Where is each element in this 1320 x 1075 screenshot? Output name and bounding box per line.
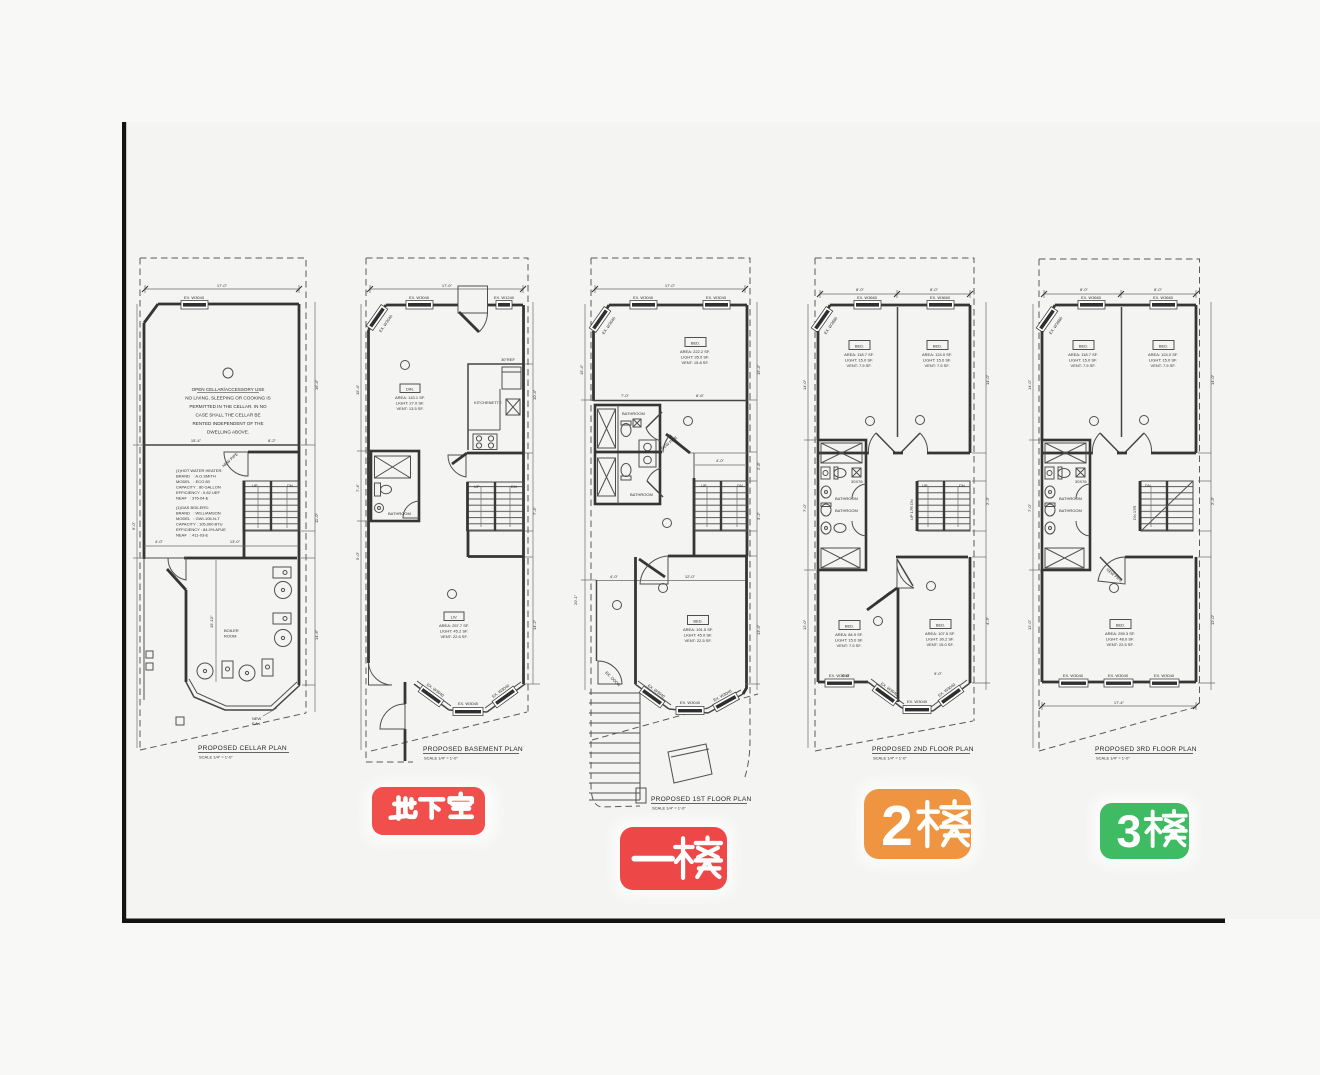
svg-text:CASE SHALL THE CELLAR BE: CASE SHALL THE CELLAR BE [195,413,260,418]
svg-text:2'-8": 2'-8" [756,461,761,470]
svg-text:AREA: 124.0 SF.: AREA: 124.0 SF. [1148,352,1178,357]
svg-text:CAPACITY : 80 GALLON: CAPACITY : 80 GALLON [176,485,221,490]
svg-text:BATHROOM: BATHROOM [835,508,858,513]
svg-text:LIGHT: 27.0 SF.: LIGHT: 27.0 SF. [396,401,424,406]
svg-text:BATHROOM: BATHROOM [622,411,645,416]
svg-text:PROPOSED CELLAR PLAN: PROPOSED CELLAR PLAN [198,745,287,752]
svg-text:EX. W3660: EX. W3660 [1153,295,1174,300]
svg-text:VENT: 7.5 SF.: VENT: 7.5 SF. [925,363,950,368]
svg-text:EX. W3040: EX. W3040 [184,295,205,300]
svg-text:VENT: 22.6 SF.: VENT: 22.6 SF. [440,634,467,639]
svg-text:8'-0": 8'-0" [1154,287,1163,292]
svg-text:AREA: 107.5 SF.: AREA: 107.5 SF. [925,631,955,636]
svg-text:PROPOSED 2ND FLOOR PLAN: PROPOSED 2ND FLOOR PLAN [872,746,974,753]
svg-text:DN: DN [1145,483,1151,488]
svg-text:14'-0": 14'-0" [802,379,807,390]
svg-text:EX. W3040: EX. W3040 [633,295,654,300]
svg-text:BED.: BED. [1079,344,1088,349]
svg-text:AREA: 84.9 SF.: AREA: 84.9 SF. [835,632,863,637]
svg-text:SCALE 1/4" = 1'-0": SCALE 1/4" = 1'-0" [873,756,907,761]
svg-text:7'-0": 7'-0" [802,503,807,512]
svg-text:17'-0": 17'-0" [217,283,228,288]
svg-text:BED.: BED. [936,623,945,628]
svg-text:RENTED INDEPENDENT OF THE: RENTED INDEPENDENT OF THE [192,421,263,426]
svg-text:NEA# : 376-04-E: NEA# : 376-04-E [176,496,209,501]
svg-text:VENT: 7.5 SF.: VENT: 7.5 SF. [1151,363,1176,368]
svg-text:AREA: 259.3 SF.: AREA: 259.3 SF. [1105,631,1135,636]
svg-text:NO LIVING, SLEEPING OR COOKING: NO LIVING, SLEEPING OR COOKING IS [185,396,271,401]
svg-text:DN: DN [287,483,293,488]
svg-text:EX. W3040: EX. W3040 [907,699,928,704]
svg-text:14'-0": 14'-0" [1210,374,1215,385]
svg-text:EX. W3040: EX. W3040 [1108,673,1129,678]
svg-text:14'-6": 14'-6" [314,629,319,640]
svg-text:30X76: 30X76 [851,479,863,484]
svg-text:LIGHT: 45.2 SF.: LIGHT: 45.2 SF. [440,629,468,634]
svg-text:15'-4": 15'-4" [756,364,761,375]
svg-text:ROOM: ROOM [224,634,236,639]
svg-text:EFFICIENCY : 84.0% AFUE: EFFICIENCY : 84.0% AFUE [176,527,226,532]
svg-text:LIGHT: 15.0 SF.: LIGHT: 15.0 SF. [923,358,951,363]
svg-text:7'-4": 7'-4" [355,483,360,492]
svg-text:LIV.: LIV. [451,615,458,620]
svg-text:EX. W3660: EX. W3660 [857,295,878,300]
svg-text:13'-4": 13'-4" [756,624,761,635]
svg-text:4'-0": 4'-0" [155,539,164,544]
svg-text:BED.: BED. [693,619,702,624]
svg-text:VENT: 15.0 SF.: VENT: 15.0 SF. [926,642,953,647]
svg-text:UP: UP [474,484,480,489]
svg-text:30"REF: 30"REF [501,357,515,362]
svg-text:3'-2": 3'-2" [756,511,761,520]
svg-text:DN: DN [737,483,743,488]
svg-text:13'-0": 13'-0" [230,539,241,544]
svg-text:DN: DN [511,484,517,489]
svg-text:3: 3 [1116,806,1141,857]
svg-text:AREA: 124.0 SF.: AREA: 124.0 SF. [922,352,952,357]
svg-text:PROPOSED 1ST FLOOR PLAN: PROPOSED 1ST FLOOR PLAN [651,796,752,803]
svg-text:9'-0": 9'-0" [934,671,943,676]
svg-text:12'-0": 12'-0" [1210,614,1215,625]
svg-text:4'-0": 4'-0" [716,458,725,463]
svg-text:BATHROOM: BATHROOM [388,511,411,516]
svg-text:UP: UP [701,483,707,488]
svg-text:LIGHT: 48.0 SF.: LIGHT: 48.0 SF. [1106,637,1134,642]
svg-text:BED.: BED. [1116,623,1125,628]
svg-text:VENT: 22.5 SF.: VENT: 22.5 SF. [684,638,711,643]
svg-text:6'-0": 6'-0" [131,521,136,530]
svg-text:2'-3": 2'-3" [1210,496,1215,505]
svg-text:OPEN CELLAR/ACCESSORY USE: OPEN CELLAR/ACCESSORY USE [192,387,265,392]
svg-text:BED.: BED. [855,344,864,349]
svg-text:EFFICIENCY : 0.82 UEF: EFFICIENCY : 0.82 UEF [176,490,220,495]
svg-text:EX. W3040: EX. W3040 [1154,673,1175,678]
svg-text:DN 17R: DN 17R [1132,506,1137,520]
svg-text:15'-4": 15'-4" [579,364,584,375]
svg-text:VENT: 7.5 SF.: VENT: 7.5 SF. [837,643,862,648]
svg-text:2: 2 [881,794,913,858]
svg-text:BATHROOM: BATHROOM [1059,496,1082,501]
svg-text:30X76: 30X76 [1075,479,1087,484]
svg-text:(1)GAS BOILERS:: (1)GAS BOILERS: [176,505,209,510]
svg-text:UP 17R DN: UP 17R DN [909,499,914,520]
svg-text:BOILER: BOILER [224,628,239,633]
svg-text:EX. W3040: EX. W3040 [1063,673,1084,678]
svg-text:VENT: 7.5 SF.: VENT: 7.5 SF. [1071,363,1096,368]
svg-text:4'-0": 4'-0" [610,574,619,579]
svg-text:EX. W3040: EX. W3040 [409,295,430,300]
svg-text:12'-0": 12'-0" [1027,619,1032,630]
svg-text:MODEL : ECO 80: MODEL : ECO 80 [176,479,211,484]
svg-text:LIGHT: 15.0 SF.: LIGHT: 15.0 SF. [845,358,873,363]
svg-text:BATHROOM: BATHROOM [835,496,858,501]
svg-text:EX. W3040: EX. W3040 [458,701,479,706]
svg-text:LIGHT: 15.0 SF.: LIGHT: 15.0 SF. [1149,358,1177,363]
svg-text:PROPOSED 3RD FLOOR PLAN: PROPOSED 3RD FLOOR PLAN [1095,746,1197,753]
svg-text:4'-3": 4'-3" [985,616,990,625]
svg-text:SCALE 1/4" = 1'-0": SCALE 1/4" = 1'-0" [1096,756,1130,761]
svg-text:F.A.I.: F.A.I. [252,721,261,726]
svg-text:EX. W3040: EX. W3040 [829,673,850,678]
svg-text:2'-3": 2'-3" [985,496,990,505]
svg-text:17'-4": 17'-4" [1114,700,1125,705]
svg-text:LIGHT: 35.0 SF.: LIGHT: 35.0 SF. [681,355,709,360]
svg-text:BED.: BED. [1159,344,1168,349]
svg-text:DWELLING ABOVE.: DWELLING ABOVE. [207,430,249,435]
svg-text:17'-0": 17'-0" [442,283,453,288]
svg-text:BED.: BED. [691,341,700,346]
svg-text:12'-0": 12'-0" [802,619,807,630]
svg-text:EX. W3660: EX. W3660 [930,295,951,300]
svg-text:8'-0": 8'-0" [930,287,939,292]
svg-text:BATHROOM: BATHROOM [1059,508,1082,513]
svg-text:VENT: 15.8 SF.: VENT: 15.8 SF. [681,360,708,365]
svg-text:SCALE 1/4" = 1'-0": SCALE 1/4" = 1'-0" [652,806,686,811]
svg-text:PERMITTED IN THE CELLAR. IN NO: PERMITTED IN THE CELLAR. IN NO [189,404,267,409]
svg-text:BATHROOM: BATHROOM [630,492,653,497]
svg-text:15'-4": 15'-4" [355,384,360,395]
svg-text:8'-0": 8'-0" [1080,287,1089,292]
svg-text:VENT: 7.5 SF.: VENT: 7.5 SF. [847,363,872,368]
svg-text:LIGHT: 30.2 SF.: LIGHT: 30.2 SF. [926,637,954,642]
svg-text:UP: UP [252,483,258,488]
svg-text:16'-4": 16'-4" [314,379,319,390]
svg-text:AREA: 257.7 SF.: AREA: 257.7 SF. [439,623,469,628]
svg-text:EX. W3040: EX. W3040 [706,295,727,300]
svg-text:VENT: 22.5 SF.: VENT: 22.5 SF. [1106,642,1133,647]
svg-text:20'-1": 20'-1" [573,594,578,605]
svg-text:LIGHT: 45.0 SF.: LIGHT: 45.0 SF. [684,633,712,638]
svg-text:BRAND : A.O.SMITH: BRAND : A.O.SMITH [176,474,216,479]
svg-text:8'-2": 8'-2" [268,438,277,443]
svg-text:KITCHENETTE: KITCHENETTE [474,400,502,405]
svg-text:15'-10": 15'-10" [209,615,214,628]
svg-text:7'-4": 7'-4" [532,506,537,515]
svg-text:17'-0": 17'-0" [665,283,676,288]
svg-text:8'-0": 8'-0" [856,287,865,292]
svg-text:AREA: 118.7 SF.: AREA: 118.7 SF. [844,352,874,357]
svg-text:14'-2": 14'-2" [532,619,537,630]
svg-text:VENT: 13.5 SF.: VENT: 13.5 SF. [396,406,423,411]
svg-text:AREA: 222.2 SF.: AREA: 222.2 SF. [680,349,710,354]
svg-text:7'-0": 7'-0" [621,393,630,398]
svg-text:15'-4": 15'-4" [191,438,202,443]
svg-text:UP: UP [922,483,928,488]
svg-text:5'-0": 5'-0" [355,551,360,560]
svg-text:10'-4": 10'-4" [532,389,537,400]
svg-text:14'-0": 14'-0" [1027,379,1032,390]
svg-text:LIGHT: 15.0 SF.: LIGHT: 15.0 SF. [835,638,863,643]
svg-text:NEA# : 411-03-E: NEA# : 411-03-E [176,533,208,538]
svg-text:SCALE 1/4" = 1'-0": SCALE 1/4" = 1'-0" [199,755,233,760]
svg-text:12'-0": 12'-0" [685,574,696,579]
svg-text:AREA: 118.7 SF.: AREA: 118.7 SF. [1068,352,1098,357]
svg-text:DN: DN [959,483,965,488]
svg-text:LIGHT: 15.0 SF.: LIGHT: 15.0 SF. [1069,358,1097,363]
svg-text:AREA: 191.5 SF.: AREA: 191.5 SF. [683,627,713,632]
svg-text:(1)HOT WATER HEATER:: (1)HOT WATER HEATER: [176,468,223,473]
svg-text:BED.: BED. [933,344,942,349]
svg-text:BRAND : WILLIAMSON: BRAND : WILLIAMSON [176,511,221,516]
svg-text:DIN.: DIN. [406,387,414,392]
svg-text:SCALE 1/4" = 1'-0": SCALE 1/4" = 1'-0" [424,756,458,761]
svg-text:CAPACITY : 105,000 BTU: CAPACITY : 105,000 BTU [176,522,223,527]
svg-text:BED.: BED. [845,624,854,629]
svg-text:AREA: 143.1 SF.: AREA: 143.1 SF. [395,395,425,400]
svg-text:14'-0": 14'-0" [985,374,990,385]
svg-text:EX. W3040: EX. W3040 [680,700,701,705]
svg-text:11'-0": 11'-0" [314,513,319,523]
svg-text:EX. W1240: EX. W1240 [494,295,515,300]
svg-text:7'-0": 7'-0" [1027,503,1032,512]
svg-text:EX. W3660: EX. W3660 [1081,295,1102,300]
svg-text:8'-6": 8'-6" [696,393,705,398]
svg-text:MODEL : GWI-105-N-T: MODEL : GWI-105-N-T [176,516,220,521]
svg-text:PROPOSED BASEMENT PLAN: PROPOSED BASEMENT PLAN [423,746,523,753]
